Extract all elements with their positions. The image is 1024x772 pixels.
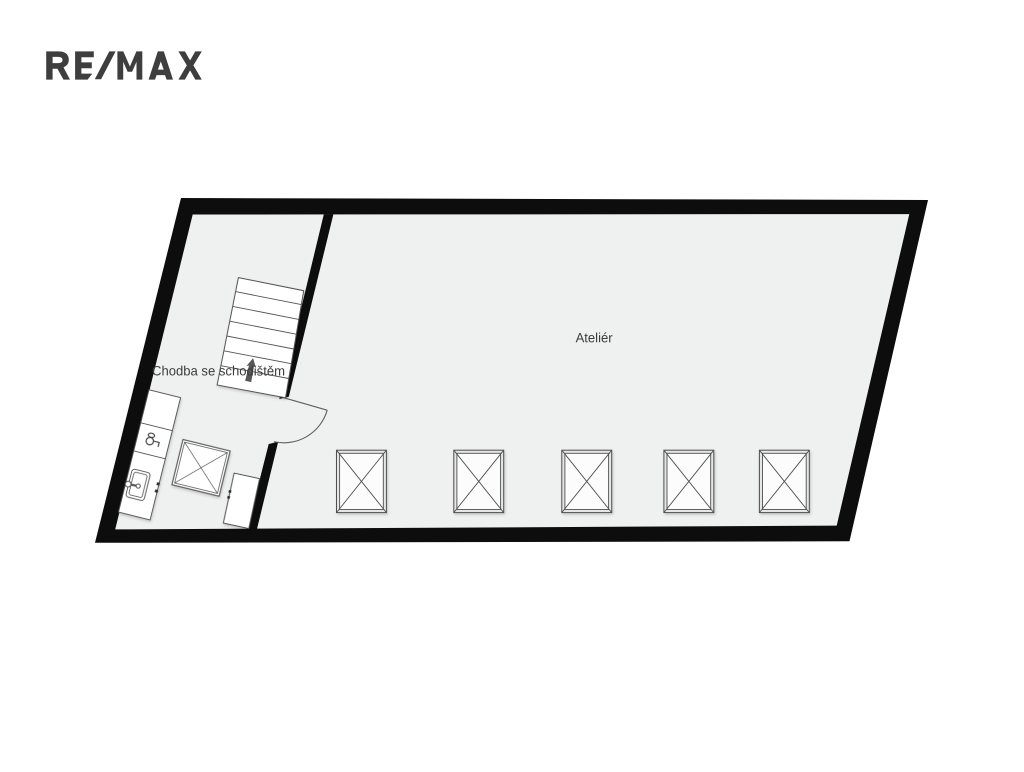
svg-text:Ateliér: Ateliér <box>576 330 613 345</box>
svg-text:Chodba se schodištěm: Chodba se schodištěm <box>152 363 285 378</box>
